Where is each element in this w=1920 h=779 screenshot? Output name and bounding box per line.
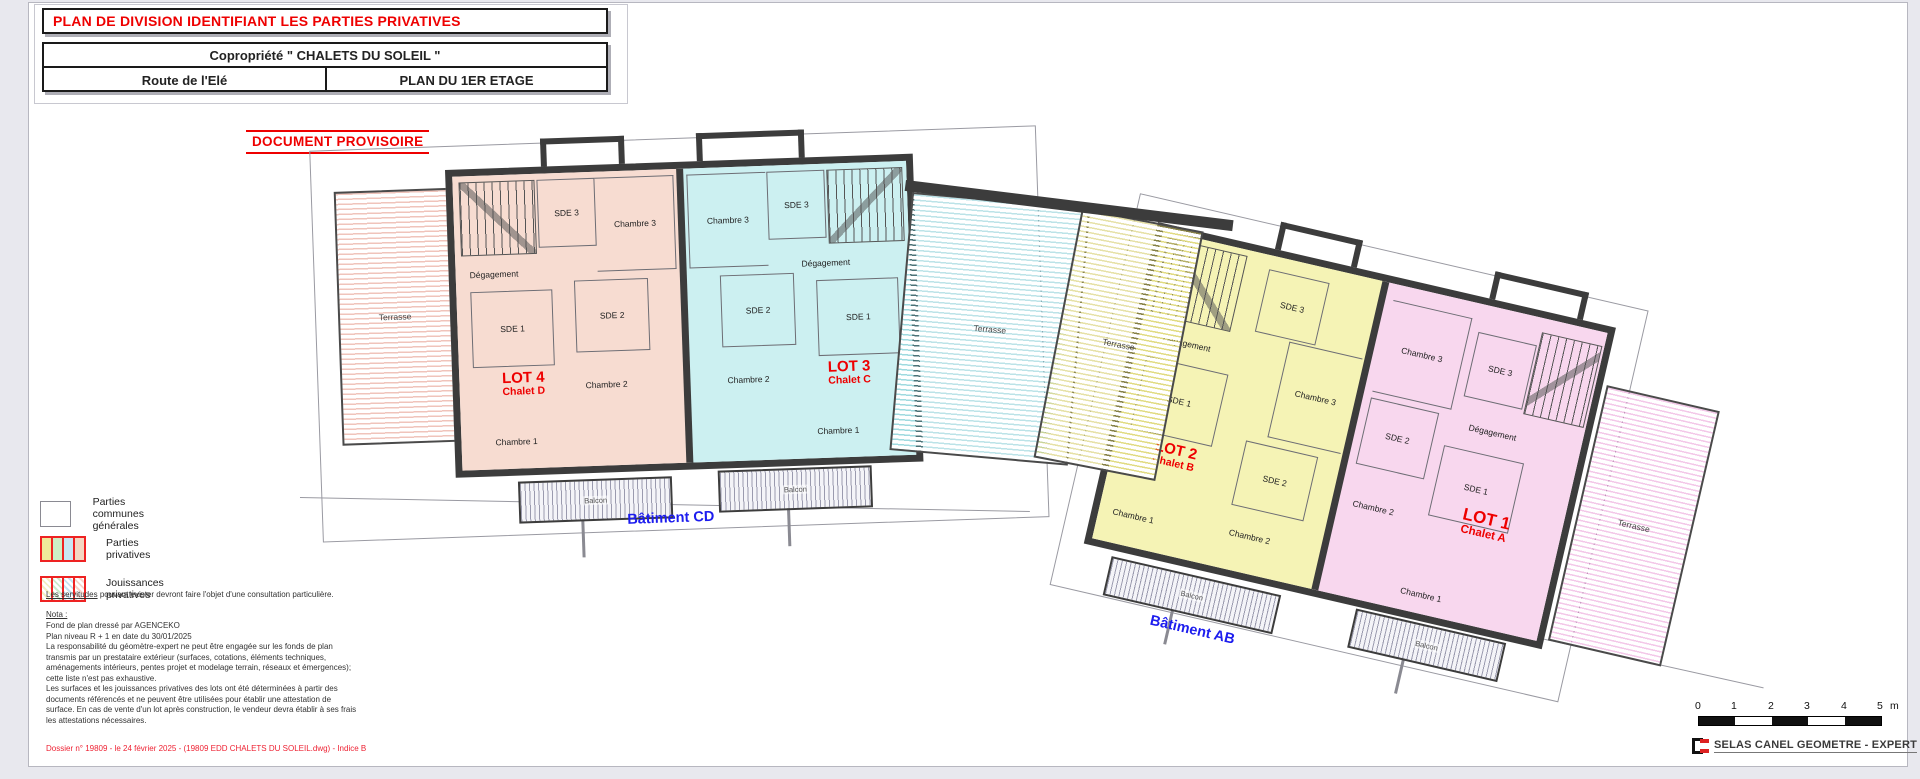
- room-label: Chambre 3: [1294, 388, 1337, 407]
- terrasse-label: Terrasse: [973, 322, 1006, 335]
- nota-line: Plan niveau R + 1 en date du 30/01/2025: [46, 632, 506, 643]
- scale-bar: 0 1 2 3 4 5 m: [1698, 700, 1882, 726]
- room-label: SDE 2: [746, 305, 771, 316]
- room-label: SDE 3: [1487, 363, 1513, 378]
- room-chambre1-chalet-d: Chambre 1: [495, 436, 537, 447]
- room-sde1-chalet-c: SDE 1: [816, 277, 901, 356]
- room-chambre3-chalet-c: Chambre 3: [686, 172, 768, 269]
- lot-4-label: LOT 4 Chalet D: [469, 369, 578, 400]
- scale-tick: 5: [1877, 700, 1883, 712]
- room-sde3-chalet-d: SDE 3: [536, 178, 596, 248]
- canel-logo-icon: [1692, 738, 1709, 754]
- plan-title: PLAN DE DIVISION IDENTIFIANT LES PARTIES…: [53, 13, 461, 29]
- legend-swatch-common: [40, 501, 71, 527]
- room-label: Chambre 3: [614, 218, 656, 229]
- project-name: Copropriété " CHALETS DU SOLEIL ": [44, 44, 606, 68]
- room-label: SDE 2: [1384, 431, 1410, 446]
- legend-swatch-private: [40, 536, 84, 562]
- scale-ticks: 0 1 2 3 4 5 m: [1698, 700, 1882, 713]
- room-label: SDE 1: [846, 311, 871, 322]
- room-sde2-chalet-c: SDE 2: [720, 273, 796, 348]
- plan-document-page: { "title_block": { "line1": "PLAN DE DIV…: [0, 0, 1920, 779]
- nota-title: Nota :: [46, 610, 506, 621]
- room-sde3-chalet-c: SDE 3: [766, 170, 826, 240]
- notes-block: Les servitudes pouvant exister devront f…: [46, 590, 506, 726]
- nota-line: Les surfaces et les jouissances privativ…: [46, 684, 506, 695]
- room-label: Chambre 3: [707, 214, 749, 225]
- room-label: SDE 1: [1463, 482, 1489, 497]
- servitudes-rest: pouvant exister devront faire l'objet d'…: [98, 590, 334, 599]
- terrasse-label: Terrasse: [379, 311, 412, 322]
- legend-label: Parties communes générales: [93, 496, 168, 532]
- room-label: SDE 1: [500, 323, 525, 334]
- legend-row-common: Parties communes générales: [40, 496, 167, 532]
- balcon-label: Balcon: [582, 495, 609, 505]
- balcon-label: Balcon: [1413, 638, 1441, 653]
- scale-unit: m: [1890, 700, 1899, 712]
- room-label: SDE 2: [1262, 473, 1288, 488]
- nota-line: Fond de plan dressé par AGENCEKO: [46, 621, 506, 632]
- room-degagement-chalet-c: Dégagement: [801, 257, 850, 269]
- room-label: Chambre 3: [1400, 345, 1443, 364]
- nota-line: documents référencés et ne peuvent être …: [46, 695, 506, 706]
- balcon-label: Balcon: [782, 484, 809, 494]
- room-label: SDE 3: [784, 199, 809, 210]
- room-chambre2-chalet-d: Chambre 2: [585, 379, 627, 390]
- title-block-sub: Copropriété " CHALETS DU SOLEIL " Route …: [42, 42, 608, 92]
- scale-tick: 3: [1804, 700, 1810, 712]
- nota-line: aménagements intérieurs, pentes projet e…: [46, 663, 506, 674]
- legend-row-private: Parties privatives: [40, 536, 150, 562]
- room-sde2-chalet-d: SDE 2: [574, 278, 650, 353]
- nota-line: La responsabilité du géomètre-expert ne …: [46, 642, 506, 653]
- nota-line: les attestations nécessaires.: [46, 716, 506, 727]
- nota-line: cette liste n'est pas exhaustive.: [46, 674, 506, 685]
- nota-line: transmis par un prestataire extérieur (s…: [46, 653, 506, 664]
- scale-tick: 4: [1841, 700, 1847, 712]
- legend-label: Parties privatives: [106, 537, 150, 561]
- room-label: SDE 3: [554, 207, 579, 218]
- terrasse-label: Terrasse: [1102, 336, 1136, 352]
- building-group-cd: Terrasse SDE 3 Chambre 3 Dégagement SDE …: [445, 153, 941, 570]
- building-cd: SDE 3 Chambre 3 Dégagement SDE 1 SDE 2 L…: [445, 154, 923, 478]
- lot-3-label: LOT 3 Chalet C: [795, 357, 904, 388]
- scale-tick: 2: [1768, 700, 1774, 712]
- servitudes-underlined: Les servitudes: [46, 590, 98, 599]
- terrasse-label: Terrasse: [1617, 517, 1651, 534]
- room-chambre2-chalet-c: Chambre 2: [727, 374, 769, 385]
- room-chambre1-chalet-c: Chambre 1: [817, 425, 859, 436]
- room-label: SDE 3: [1279, 300, 1305, 315]
- road-name: Route de l'Elé: [44, 68, 327, 92]
- room-chambre3-chalet-d: Chambre 3: [594, 175, 676, 272]
- scale-bar-graphic: [1698, 716, 1882, 726]
- scale-tick: 0: [1695, 700, 1701, 712]
- balcon-chalet-c: Balcon: [718, 465, 873, 512]
- surveyor-name: SELAS CANEL GEOMETRE - EXPERT: [1714, 739, 1917, 753]
- room-degagement-chalet-d: Dégagement: [470, 269, 519, 281]
- staircase-chalet-d: [458, 180, 537, 257]
- room-sde1-chalet-d: SDE 1: [470, 289, 555, 368]
- dossier-reference: Dossier n° 19809 - le 24 février 2025 - …: [46, 744, 366, 753]
- balcon-label: Balcon: [1178, 588, 1206, 603]
- staircase-chalet-c: [826, 167, 905, 244]
- nota-line: surface. En cas de vente d'un lot après …: [46, 705, 506, 716]
- floor-label: PLAN DU 1ER ETAGE: [327, 68, 606, 92]
- surveyor-logo: SELAS CANEL GEOMETRE - EXPERT: [1692, 738, 1917, 754]
- servitudes-note: Les servitudes pouvant exister devront f…: [46, 590, 376, 601]
- title-block-main: PLAN DE DIVISION IDENTIFIANT LES PARTIES…: [42, 8, 608, 34]
- room-label: SDE 2: [600, 310, 625, 321]
- batiment-cd-label: Bâtiment CD: [627, 509, 715, 528]
- terrasse-chalet-d: Terrasse: [334, 188, 457, 446]
- scale-tick: 1: [1731, 700, 1737, 712]
